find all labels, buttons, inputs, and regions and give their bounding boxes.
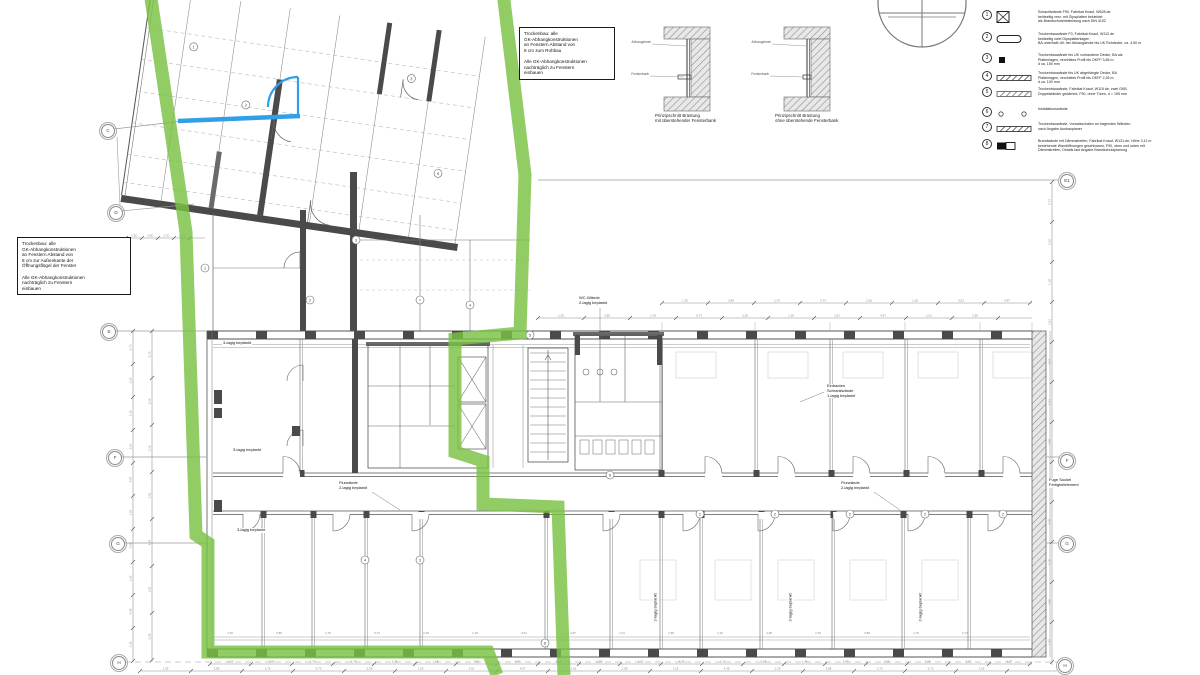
svg-text:Abhangdecke: Abhangdecke — [752, 40, 772, 44]
svg-text:Abhangdecke: Abhangdecke — [632, 40, 652, 44]
svg-text:1,76: 1,76 — [325, 631, 331, 635]
svg-text:1,01: 1,01 — [571, 667, 577, 671]
grid-marker-f-right: F — [1060, 454, 1074, 468]
svg-text:2,26: 2,26 — [742, 314, 748, 318]
svg-text:2,26: 2,26 — [392, 660, 398, 664]
detail-caption-2: Prinzipschnitt Brüstung ohne überstehend… — [775, 113, 867, 123]
svg-text:1,76: 1,76 — [310, 660, 316, 664]
half-filled-bar-icon — [996, 139, 1034, 151]
svg-text:1,35: 1,35 — [129, 641, 133, 647]
legend-number-badge: 5 — [982, 87, 992, 97]
svg-text:1,01: 1,01 — [926, 314, 932, 318]
svg-text:1,18: 1,18 — [418, 667, 424, 671]
svg-text:4,97: 4,97 — [880, 314, 886, 318]
svg-text:1,26: 1,26 — [717, 631, 723, 635]
svg-text:1,18: 1,18 — [912, 299, 918, 303]
svg-text:1,35: 1,35 — [682, 299, 688, 303]
svg-text:1,01: 1,01 — [619, 631, 625, 635]
svg-text:5,73: 5,73 — [820, 299, 826, 303]
legend-text: Trockenbauwände, Fabrikat Knauf, W115.de… — [1038, 87, 1196, 96]
grid-marker-e1-right: E1 — [1060, 174, 1074, 188]
svg-text:3,51: 3,51 — [958, 299, 964, 303]
svg-text:1,18: 1,18 — [788, 314, 794, 318]
svg-text:1,18: 1,18 — [129, 410, 133, 416]
svg-text:5,73: 5,73 — [1048, 199, 1052, 205]
svg-text:3,85: 3,85 — [604, 314, 610, 318]
svg-text:2,58: 2,58 — [148, 633, 152, 639]
svg-text:3,51: 3,51 — [834, 314, 840, 318]
grid-marker-g-right: G — [1060, 537, 1074, 551]
svg-text:4,97: 4,97 — [1048, 359, 1052, 365]
legend-text: Trockenbauwände bis UK abgehängte Decke,… — [1038, 71, 1196, 85]
hatched-wall-icon — [996, 87, 1034, 99]
svg-text:5,73: 5,73 — [374, 631, 380, 635]
svg-text:3,85: 3,85 — [1048, 599, 1052, 605]
legend-text: Schachtwände F90, Fabrikat Knauf, W628.d… — [1038, 10, 1196, 24]
legend-text: Trockenbauwände F0, Fabrikat Knauf, W112… — [1038, 32, 1196, 46]
svg-text:1,01: 1,01 — [1048, 399, 1052, 405]
plan-label: 3-lagig beplankt — [236, 528, 266, 533]
grid-marker-e-left: E — [102, 325, 116, 339]
svg-text:1,01: 1,01 — [148, 586, 152, 592]
svg-text:3,85: 3,85 — [728, 299, 734, 303]
grid-marker-h-right: H — [1058, 659, 1072, 673]
svg-text:4,97: 4,97 — [129, 476, 133, 482]
svg-text:4,97: 4,97 — [570, 631, 576, 635]
svg-text:4,97: 4,97 — [515, 660, 521, 664]
svg-text:5,73: 5,73 — [696, 314, 702, 318]
svg-text:2,26: 2,26 — [1048, 239, 1052, 245]
svg-text:Fensterbank: Fensterbank — [751, 72, 769, 76]
svg-text:3,85: 3,85 — [826, 667, 832, 671]
plan-label: 2-lagig beplankt — [654, 592, 659, 622]
svg-text:2,58: 2,58 — [972, 314, 978, 318]
svg-text:1,35: 1,35 — [163, 667, 169, 671]
svg-text:2,26: 2,26 — [979, 667, 985, 671]
svg-text:1,18: 1,18 — [925, 660, 931, 664]
svg-text:2,26: 2,26 — [866, 299, 872, 303]
svg-text:2,58: 2,58 — [622, 667, 628, 671]
svg-text:1,18: 1,18 — [1048, 279, 1052, 285]
svg-text:1,35: 1,35 — [228, 660, 234, 664]
plan-label: 2-lagig beplankt — [789, 592, 794, 622]
legend-text: Trockenbauwände, Vorsatzschalen an trage… — [1038, 122, 1196, 131]
legend-number-badge: 2 — [982, 32, 992, 42]
svg-text:2,58: 2,58 — [668, 631, 674, 635]
svg-text:1,26: 1,26 — [129, 575, 133, 581]
svg-text:1,35: 1,35 — [227, 631, 233, 635]
svg-text:1,35: 1,35 — [558, 314, 564, 318]
legend-text: Brandwände mit Dämmstreifen, Fabrikat Kn… — [1038, 139, 1196, 153]
svg-text:1,35: 1,35 — [775, 667, 781, 671]
svg-text:4,38: 4,38 — [129, 608, 133, 614]
svg-text:1,76: 1,76 — [265, 667, 271, 671]
legend-number-badge: 3 — [982, 53, 992, 63]
svg-text:5,73: 5,73 — [843, 660, 849, 664]
hatched-wall-icon — [996, 71, 1034, 83]
svg-text:2,58: 2,58 — [129, 542, 133, 548]
plan-label: Flurwände 2-lagig beplankt — [840, 481, 870, 491]
svg-text:3,85: 3,85 — [864, 631, 870, 635]
svg-text:1,76: 1,76 — [1048, 639, 1052, 645]
svg-text:3,51: 3,51 — [469, 667, 475, 671]
svg-text:3,85: 3,85 — [214, 667, 220, 671]
crossed-box-icon — [996, 10, 1034, 22]
svg-text:3,51: 3,51 — [1048, 319, 1052, 325]
plan-label: Fuge Sockel Fertigteilelement — [1048, 478, 1080, 488]
plan-label: Einbauten Schrankwände 1-lagig beplankt — [826, 384, 856, 398]
svg-text:2,26: 2,26 — [129, 377, 133, 383]
svg-text:2,58: 2,58 — [597, 660, 603, 664]
north-symbol — [878, 0, 966, 47]
svg-text:5,73: 5,73 — [129, 344, 133, 350]
legend-number-badge: 1 — [982, 10, 992, 20]
plan-label: Flurwände 2-lagig beplankt — [338, 481, 368, 491]
svg-text:3,51: 3,51 — [966, 660, 972, 664]
svg-text:2,58: 2,58 — [1048, 439, 1052, 445]
svg-text:3,51: 3,51 — [474, 660, 480, 664]
svg-text:1,35: 1,35 — [1048, 559, 1052, 565]
svg-text:3,85: 3,85 — [269, 660, 275, 664]
svg-text:1,35: 1,35 — [131, 234, 137, 238]
svg-text:3,51: 3,51 — [148, 492, 152, 498]
svg-text:1,76: 1,76 — [650, 314, 656, 318]
svg-text:2,26: 2,26 — [884, 660, 890, 664]
svg-text:5,73: 5,73 — [928, 667, 934, 671]
svg-text:4,97: 4,97 — [148, 539, 152, 545]
svg-text:4,97: 4,97 — [1004, 299, 1010, 303]
legend-number-badge: 6 — [982, 107, 992, 117]
floor-plan-sheet: 12341,353,851,765,732,261,183,514,971,01… — [0, 0, 1200, 675]
dimension-layer: 1,353,851,765,732,261,183,514,971,012,58… — [114, 121, 1059, 673]
main-slab — [207, 331, 1050, 657]
legend-number-badge: 7 — [982, 122, 992, 132]
floor-plan-canvas: 12341,353,851,765,732,261,183,514,971,01… — [0, 0, 1200, 675]
svg-text:1,76: 1,76 — [913, 631, 919, 635]
svg-text:1,18: 1,18 — [472, 631, 478, 635]
circles-icon — [996, 107, 1034, 119]
svg-text:3,85: 3,85 — [761, 660, 767, 664]
svg-text:1,01: 1,01 — [129, 509, 133, 515]
plan-label: WC-Wände 2-lagig beplankt — [578, 296, 608, 306]
svg-text:2,26: 2,26 — [148, 398, 152, 404]
svg-text:5,73: 5,73 — [962, 631, 968, 635]
wc-core — [573, 332, 664, 470]
svg-text:4,38: 4,38 — [724, 667, 730, 671]
plan-label: 3-lagig beplankt — [222, 341, 252, 346]
plan-label: 2-lagig beplankt — [919, 592, 924, 622]
svg-text:1,35: 1,35 — [720, 660, 726, 664]
svg-text:5,73: 5,73 — [148, 351, 152, 357]
svg-text:1,35: 1,35 — [815, 631, 821, 635]
svg-text:2,26: 2,26 — [367, 667, 373, 671]
svg-text:1,76: 1,76 — [774, 299, 780, 303]
legend-text: Installationswände — [1038, 107, 1196, 112]
svg-text:3,51: 3,51 — [521, 631, 527, 635]
grid-marker-f-left: F — [108, 451, 122, 465]
svg-text:1,18: 1,18 — [433, 660, 439, 664]
section-detail: AbhangdeckeFensterbank — [631, 27, 710, 111]
svg-text:4,38: 4,38 — [1048, 519, 1052, 525]
detail-caption-1: Prinzipschnitt Brüstung mit überstehende… — [655, 113, 747, 123]
svg-text:3,85: 3,85 — [147, 234, 153, 238]
note-box-top: Trockenbau: alle GK-Abhangkonstruktionen… — [519, 27, 615, 80]
svg-text:1,76: 1,76 — [163, 234, 169, 238]
svg-text:5,73: 5,73 — [316, 667, 322, 671]
grid-marker-h-left: H — [112, 656, 126, 670]
svg-text:2,26: 2,26 — [423, 631, 429, 635]
svg-text:1,18: 1,18 — [148, 445, 152, 451]
svg-text:1,26: 1,26 — [673, 667, 679, 671]
section-detail: AbhangdeckeFensterbank — [751, 27, 830, 111]
grid-marker-g-left: G — [111, 537, 125, 551]
svg-text:4,97: 4,97 — [1007, 660, 1013, 664]
svg-text:3,85: 3,85 — [276, 631, 282, 635]
note-box-left: Trockenbau: alle GK-Abhangkonstruktionen… — [17, 237, 131, 295]
grid-marker-c-left: C — [101, 124, 115, 138]
svg-text:4,38: 4,38 — [766, 631, 772, 635]
filled-square-icon — [996, 53, 1034, 65]
svg-text:4,97: 4,97 — [520, 667, 526, 671]
pill-wall-icon — [996, 32, 1034, 44]
svg-text:5,73: 5,73 — [351, 660, 357, 664]
svg-text:Fensterbank: Fensterbank — [631, 72, 649, 76]
svg-text:4,38: 4,38 — [679, 660, 685, 664]
grid-marker-d-left: D — [109, 206, 123, 220]
svg-text:1,76: 1,76 — [877, 667, 883, 671]
legend-text: Trockenbauwände bis UK vorhandene Decke,… — [1038, 53, 1196, 67]
svg-text:3,51: 3,51 — [129, 443, 133, 449]
svg-text:1,26: 1,26 — [638, 660, 644, 664]
legend-number-badge: 8 — [982, 139, 992, 149]
plan-label: 3-lagig beplankt — [232, 448, 262, 453]
svg-text:1,76: 1,76 — [802, 660, 808, 664]
hatched-wall-icon — [996, 122, 1034, 134]
legend-number-badge: 4 — [982, 71, 992, 81]
